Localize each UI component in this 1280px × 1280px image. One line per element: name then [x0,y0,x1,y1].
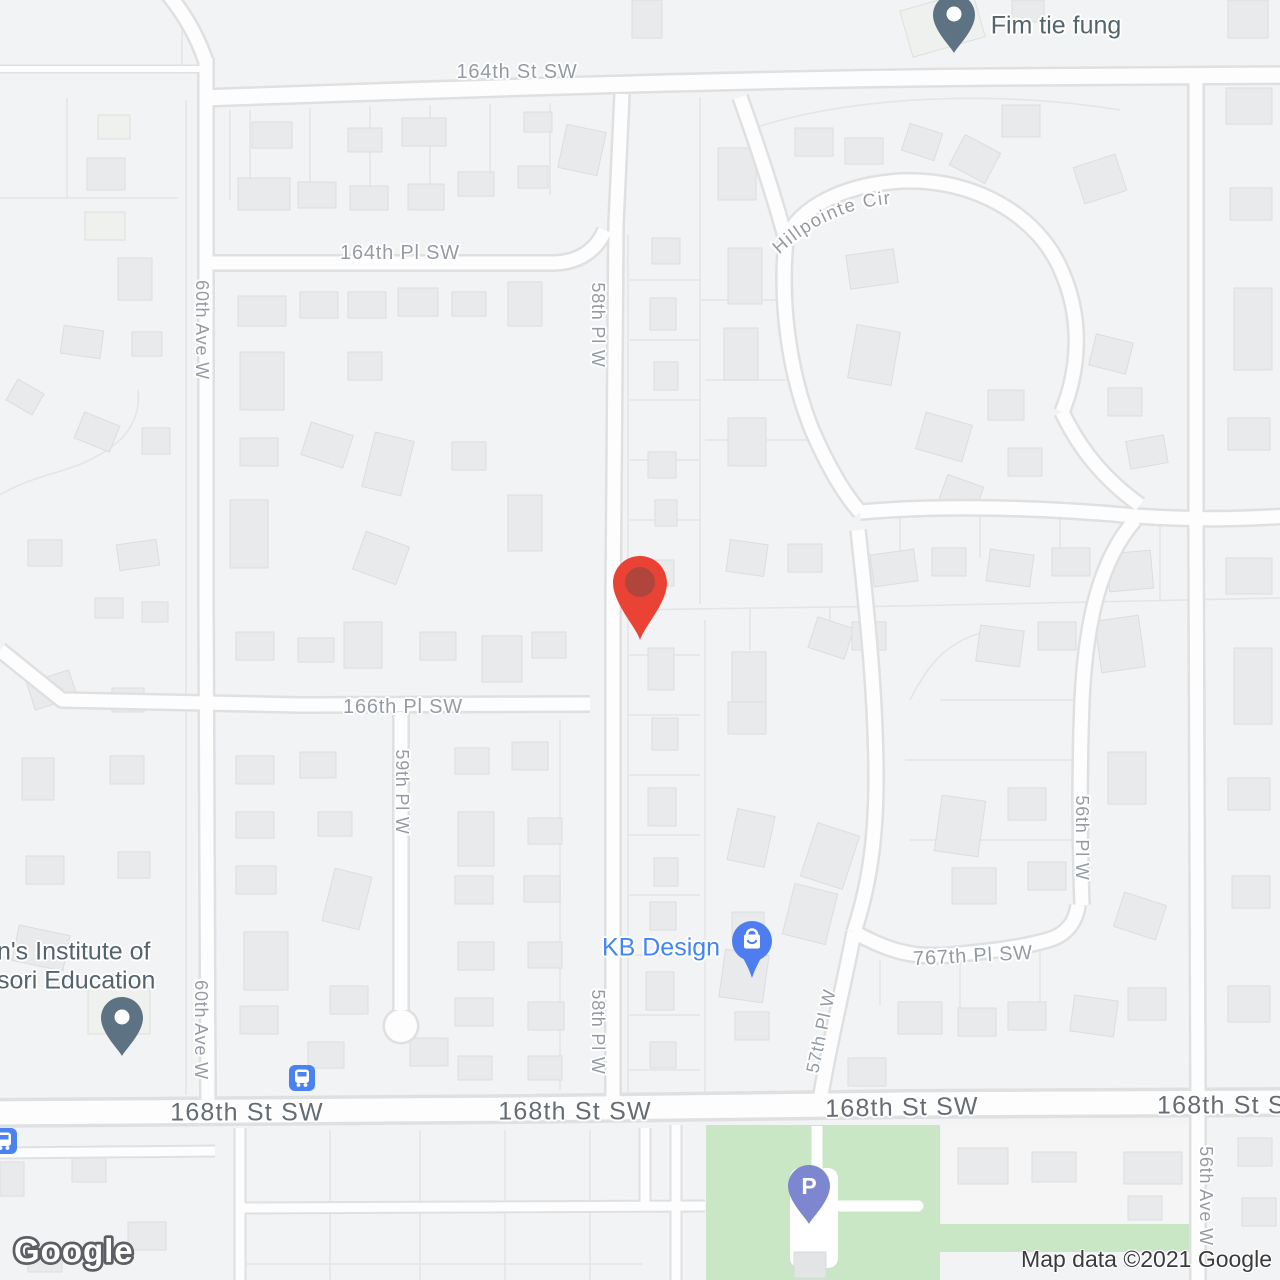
place-pin-icon[interactable] [96,992,148,1058]
street-label-56th-pl-w: 56th Pl W [1073,795,1091,880]
map-canvas[interactable]: Hillpointe Cir 164th St SW 164th Pl SW 5… [0,0,1280,1280]
street-label-58th-pl-w-top: 58th Pl W [589,282,607,367]
place-pin-icon[interactable] [928,0,980,55]
bus-stop-icon[interactable] [289,1065,315,1091]
street-label-58th-pl-w-bottom: 58th Pl W [589,989,607,1074]
shopping-bag-pin-icon[interactable] [728,917,776,979]
street-label-59th-pl-w: 59th Pl W [393,749,411,834]
street-label-168th-st-sw-4: 168th St SW [1157,1094,1280,1119]
poi-label-fim-tie-fung[interactable]: Fim tie fung [991,12,1122,41]
street-label-56th-ave-w: 56th Ave W [1197,1146,1215,1246]
poi-label-kb-design[interactable]: KB Design [602,934,720,963]
svg-text:Google: Google [14,1232,134,1269]
street-label-166th-pl-sw: 166th Pl SW [343,697,463,717]
street-label-60th-ave-w-top: 60th Ave W [193,280,211,380]
street-label-168th-st-sw-2: 168th St SW [498,1100,652,1125]
street-label-164th-pl-sw: 164th Pl SW [340,243,460,263]
bus-stop-icon[interactable] [0,1128,17,1154]
google-logo[interactable]: Google [10,1230,160,1274]
svg-text:P: P [801,1173,816,1199]
street-label-60th-ave-w-bottom: 60th Ave W [192,980,210,1080]
street-label-168th-st-sw-1: 168th St SW [170,1101,324,1126]
red-map-pin-icon[interactable] [606,549,674,644]
street-label-164th-st-sw: 164th St SW [456,62,577,82]
parking-pin-icon[interactable]: P [785,1162,833,1224]
poi-label-institute-line1[interactable]: n's Institute of [0,938,150,967]
map-attribution: Map data ©2021 Google [1021,1248,1272,1271]
street-label-168th-st-sw-3: 168th St SW [825,1094,979,1122]
